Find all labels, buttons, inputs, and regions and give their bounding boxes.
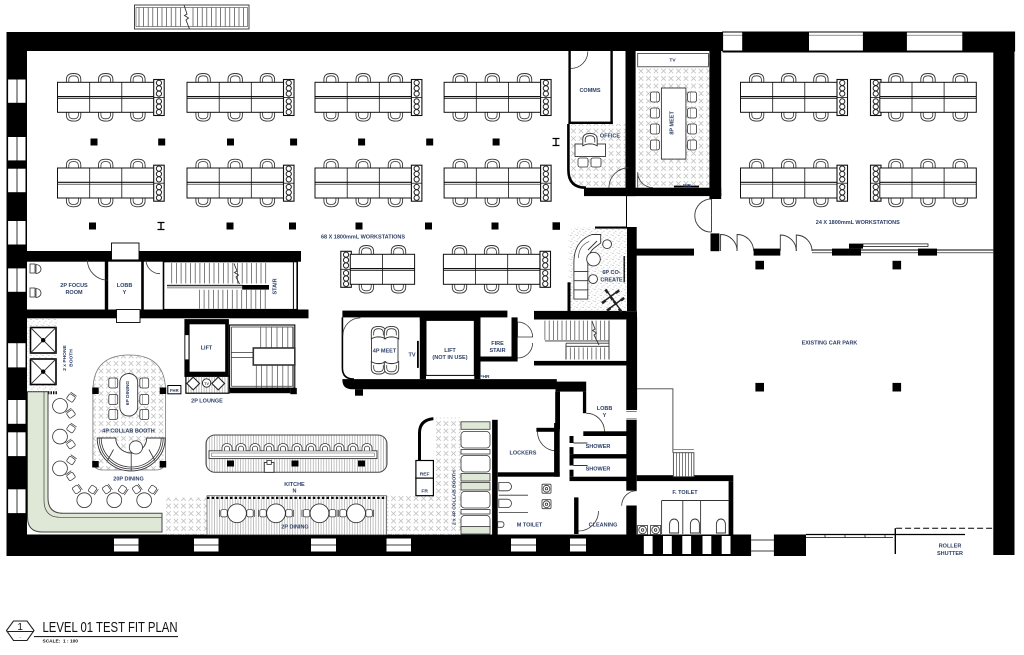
svg-text:SHUTTER: SHUTTER <box>937 551 963 557</box>
svg-text:KITCHE: KITCHE <box>284 482 305 488</box>
svg-text:68 X 1800mmL WORKSTATIONS: 68 X 1800mmL WORKSTATIONS <box>321 235 405 241</box>
svg-text:FR: FR <box>421 489 428 495</box>
svg-text:COMMS: COMMS <box>579 88 600 94</box>
svg-text:TV: TV <box>408 353 415 359</box>
svg-text:REF: REF <box>420 471 430 477</box>
svg-text:LEVEL 01 TEST FIT PLAN: LEVEL 01 TEST FIT PLAN <box>43 620 178 636</box>
svg-text:4P MEET: 4P MEET <box>373 348 397 354</box>
svg-text:ROLLER: ROLLER <box>939 544 962 550</box>
svg-text:ROOM: ROOM <box>65 290 83 296</box>
svg-text:TV: TV <box>669 58 676 64</box>
svg-text:BOOTH: BOOTH <box>69 349 75 367</box>
svg-text:2 x 4P COLLAB BOOTH: 2 x 4P COLLAB BOOTH <box>452 470 458 525</box>
svg-text:N: N <box>293 489 297 495</box>
svg-text:LIFT: LIFT <box>444 348 456 354</box>
svg-text:8P MEET: 8P MEET <box>670 111 676 135</box>
svg-text:2P FOCUS: 2P FOCUS <box>60 283 88 289</box>
svg-text:CLEANING: CLEANING <box>589 523 618 529</box>
svg-text:4P COLLAB BOOTH: 4P COLLAB BOOTH <box>102 428 154 434</box>
svg-text:WB: WB <box>683 183 692 189</box>
svg-text:2P LOUNGE: 2P LOUNGE <box>191 398 223 404</box>
svg-text:FHR: FHR <box>479 374 490 380</box>
svg-text:OFFICE: OFFICE <box>600 134 620 140</box>
svg-text:6P CO-: 6P CO- <box>602 270 620 276</box>
svg-text:LOBB: LOBB <box>117 283 133 289</box>
svg-text:F. TOILET: F. TOILET <box>672 490 698 496</box>
svg-text:LOCKERS: LOCKERS <box>510 451 537 457</box>
svg-text:FHR: FHR <box>170 388 179 393</box>
svg-text:LIFT: LIFT <box>201 346 213 352</box>
svg-text:M TOILET: M TOILET <box>517 523 543 529</box>
svg-text:(NOT IN USE): (NOT IN USE) <box>432 355 467 361</box>
svg-text:STAIR: STAIR <box>489 348 505 354</box>
svg-text:TV: TV <box>204 382 209 386</box>
svg-text:STAIR: STAIR <box>273 278 279 294</box>
svg-text:1: 1 <box>17 622 23 633</box>
svg-text:EXISTING CAR PARK: EXISTING CAR PARK <box>802 341 858 347</box>
svg-text:SHOWER: SHOWER <box>586 467 611 473</box>
svg-text:2P DINING: 2P DINING <box>281 525 308 531</box>
svg-text:2 x PHONE: 2 x PHONE <box>62 344 68 370</box>
svg-text:SHOWER: SHOWER <box>586 444 611 450</box>
svg-text:Y: Y <box>603 413 607 419</box>
svg-text:20P DINING: 20P DINING <box>113 477 143 483</box>
svg-text:LOBB: LOBB <box>597 406 613 412</box>
svg-text:24 X 1800mmL WORKSTATIONS: 24 X 1800mmL WORKSTATIONS <box>816 220 900 226</box>
svg-text:Y: Y <box>123 290 127 296</box>
svg-text:SCALE: 1 : 100: SCALE: 1 : 100 <box>43 638 79 644</box>
svg-text:FIRE: FIRE <box>491 341 504 347</box>
svg-text:6P DINING: 6P DINING <box>125 381 131 406</box>
svg-text:CREATE: CREATE <box>600 278 623 284</box>
